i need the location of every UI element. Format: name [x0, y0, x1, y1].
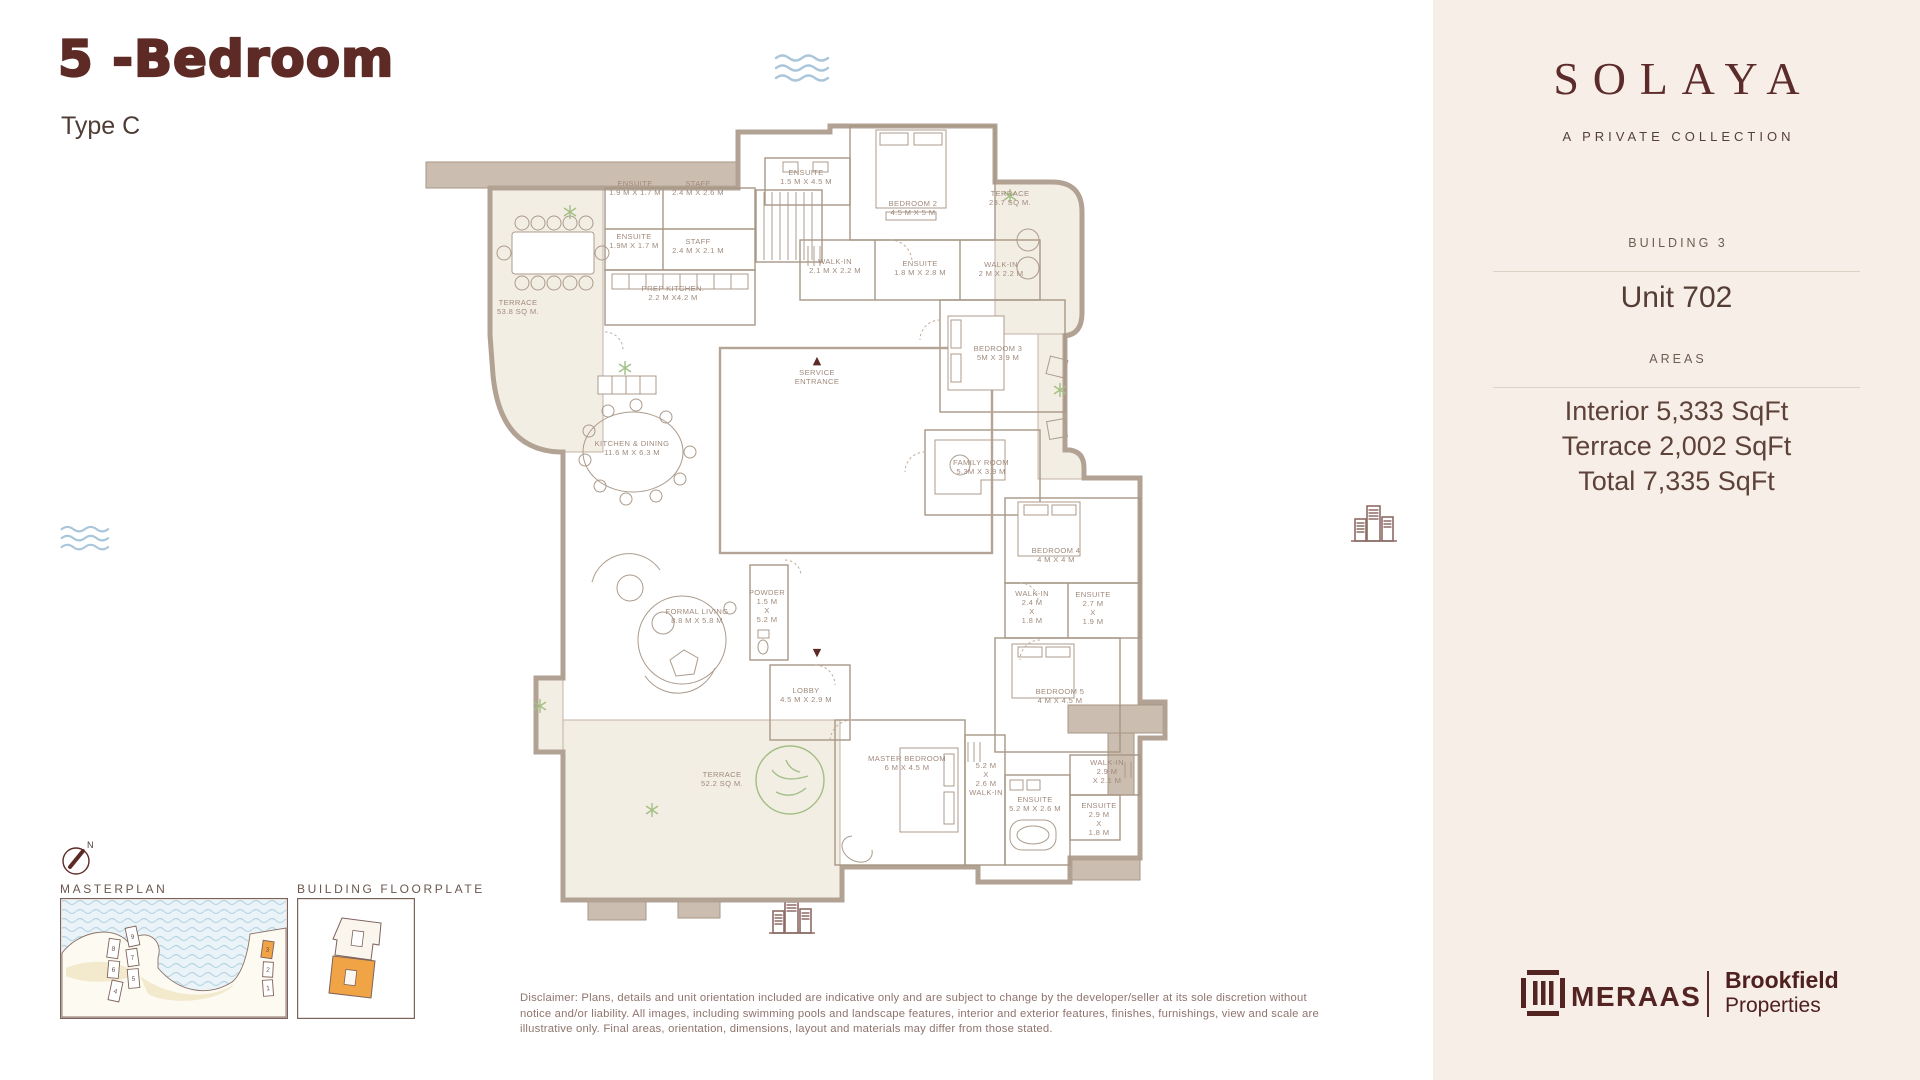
masterplan-label: MASTERPLAN: [60, 882, 167, 896]
divider: [1493, 271, 1860, 272]
terrace-step: [535, 678, 563, 752]
terrace-strip-right: [1038, 334, 1084, 479]
area-interior: Interior 5,333 SqFt: [1433, 394, 1920, 429]
wall-block-t-horizontal: [1068, 705, 1165, 733]
building-label: BUILDING 3: [1433, 236, 1920, 250]
room-label: ENSUITE2.7 MX1.9 M: [1075, 590, 1110, 626]
room-label: LOBBY4.5 M X 2.9 M: [780, 686, 832, 704]
compass-needle: [70, 851, 83, 867]
unit-number: Unit 702: [1433, 281, 1920, 315]
room-label: BEDROOM 54 M X 4.5 M: [1036, 687, 1085, 705]
room-label: POWDER1.5 MX5.2 M: [749, 588, 785, 624]
room-label: 5.2 MX2.6 MWALK-IN: [969, 761, 1003, 797]
terrace-top-left: [490, 188, 603, 452]
masterplan-thumbnail[interactable]: 864975321: [60, 898, 288, 1019]
room-label: STAFF2.4 M X 2.1 M: [672, 237, 724, 255]
brookfield-line1: Brookfield: [1725, 967, 1839, 993]
room-label: PREP KITCHEN.2.2 M X4.2 M: [642, 284, 705, 302]
brand-logo: SOLAYA: [1433, 52, 1920, 105]
room-label: SERVICEENTRANCE: [795, 368, 840, 386]
areas-label: AREAS: [1433, 352, 1920, 366]
room-label: ENSUITE1.9M X 1.7 M: [609, 232, 658, 250]
brookfield-line2: Properties: [1725, 993, 1839, 1019]
brochure-page: { "header": { "title": "5 -Bedroom", "su…: [0, 0, 1920, 1080]
page-title: 5 -Bedroom: [58, 30, 394, 88]
room-label: WALK-IN2.4 MX1.8 M: [1015, 589, 1049, 625]
disclaimer-text: Disclaimer: Plans, details and unit orie…: [520, 991, 1338, 1038]
brand-tagline: A PRIVATE COLLECTION: [1433, 129, 1920, 144]
sidebar: SOLAYA A PRIVATE COLLECTION BUILDING 3 U…: [1433, 0, 1920, 1080]
stair-core: [756, 190, 822, 262]
room-label: BEDROOM 44 M X 4 M: [1032, 546, 1081, 564]
divider: [1493, 387, 1860, 388]
room-label: FAMILY ROOM5.3M X 3.9 M: [953, 458, 1009, 476]
main-entrance-marker: ▼: [813, 646, 822, 659]
compass: N: [56, 836, 100, 880]
wall-block-bottom-right: [1068, 858, 1140, 880]
area-values: Interior 5,333 SqFt Terrace 2,002 SqFt T…: [1433, 394, 1920, 499]
room-label: WALK-IN2 M X 2.2 M: [979, 260, 1024, 278]
floorplate-thumbnail[interactable]: [297, 898, 415, 1019]
room-label: KITCHEN & DINING11.6 M X 6.3 M: [595, 439, 670, 457]
door-arcs: [605, 240, 1040, 742]
compass-north-label: N: [87, 840, 94, 850]
room-label: ENSUITE1.5 M X 4.5 M: [780, 168, 832, 186]
room-label: WALK-IN2.1 M X 2.2 M: [809, 257, 861, 275]
room-label: ENSUITE2.9 MX1.8 M: [1081, 801, 1116, 837]
meraas-wordmark: MERAAS: [1571, 981, 1701, 1013]
room-label: BEDROOM 35M X 3.9 M: [974, 344, 1023, 362]
room-label: ENSUITE5.2 M X 2.6 M: [1009, 795, 1061, 813]
room-label: TERRACE53.8 SQ M.: [497, 298, 539, 316]
brookfield-logo: Brookfield Properties: [1725, 967, 1839, 1019]
waves-icon-top: [772, 50, 830, 88]
room-label: ENSUITE1.8 M X 2.8 M: [894, 259, 946, 277]
room-label: TERRACE52.2 SQ M.: [701, 770, 743, 788]
area-terrace: Terrace 2,002 SqFt: [1433, 429, 1920, 464]
room-label: FORMAL LIVING8.8 M X 5.8 M: [666, 607, 729, 625]
entry-step-2: [678, 900, 720, 918]
waves-icon-left: [58, 522, 110, 556]
area-total: Total 7,335 SqFt: [1433, 464, 1920, 499]
service-entrance-marker: ▲: [813, 354, 822, 367]
floor-plan: ▲ ▼ ENSUITE1.9 M X 1.7 MSTAFF2.4 M X 2.6…: [420, 120, 1170, 940]
page-subtitle: Type C: [61, 112, 140, 141]
logo-divider: [1707, 971, 1709, 1017]
room-label: TERRACE23.7 SQ M.: [989, 189, 1031, 207]
floorplate-label: BUILDING FLOORPLATE: [297, 882, 485, 896]
meraas-icon: [1521, 970, 1565, 1016]
room-label: BEDROOM 24.5 M X 5 M: [889, 199, 938, 217]
city-skyline-icon-right: [1348, 502, 1400, 546]
